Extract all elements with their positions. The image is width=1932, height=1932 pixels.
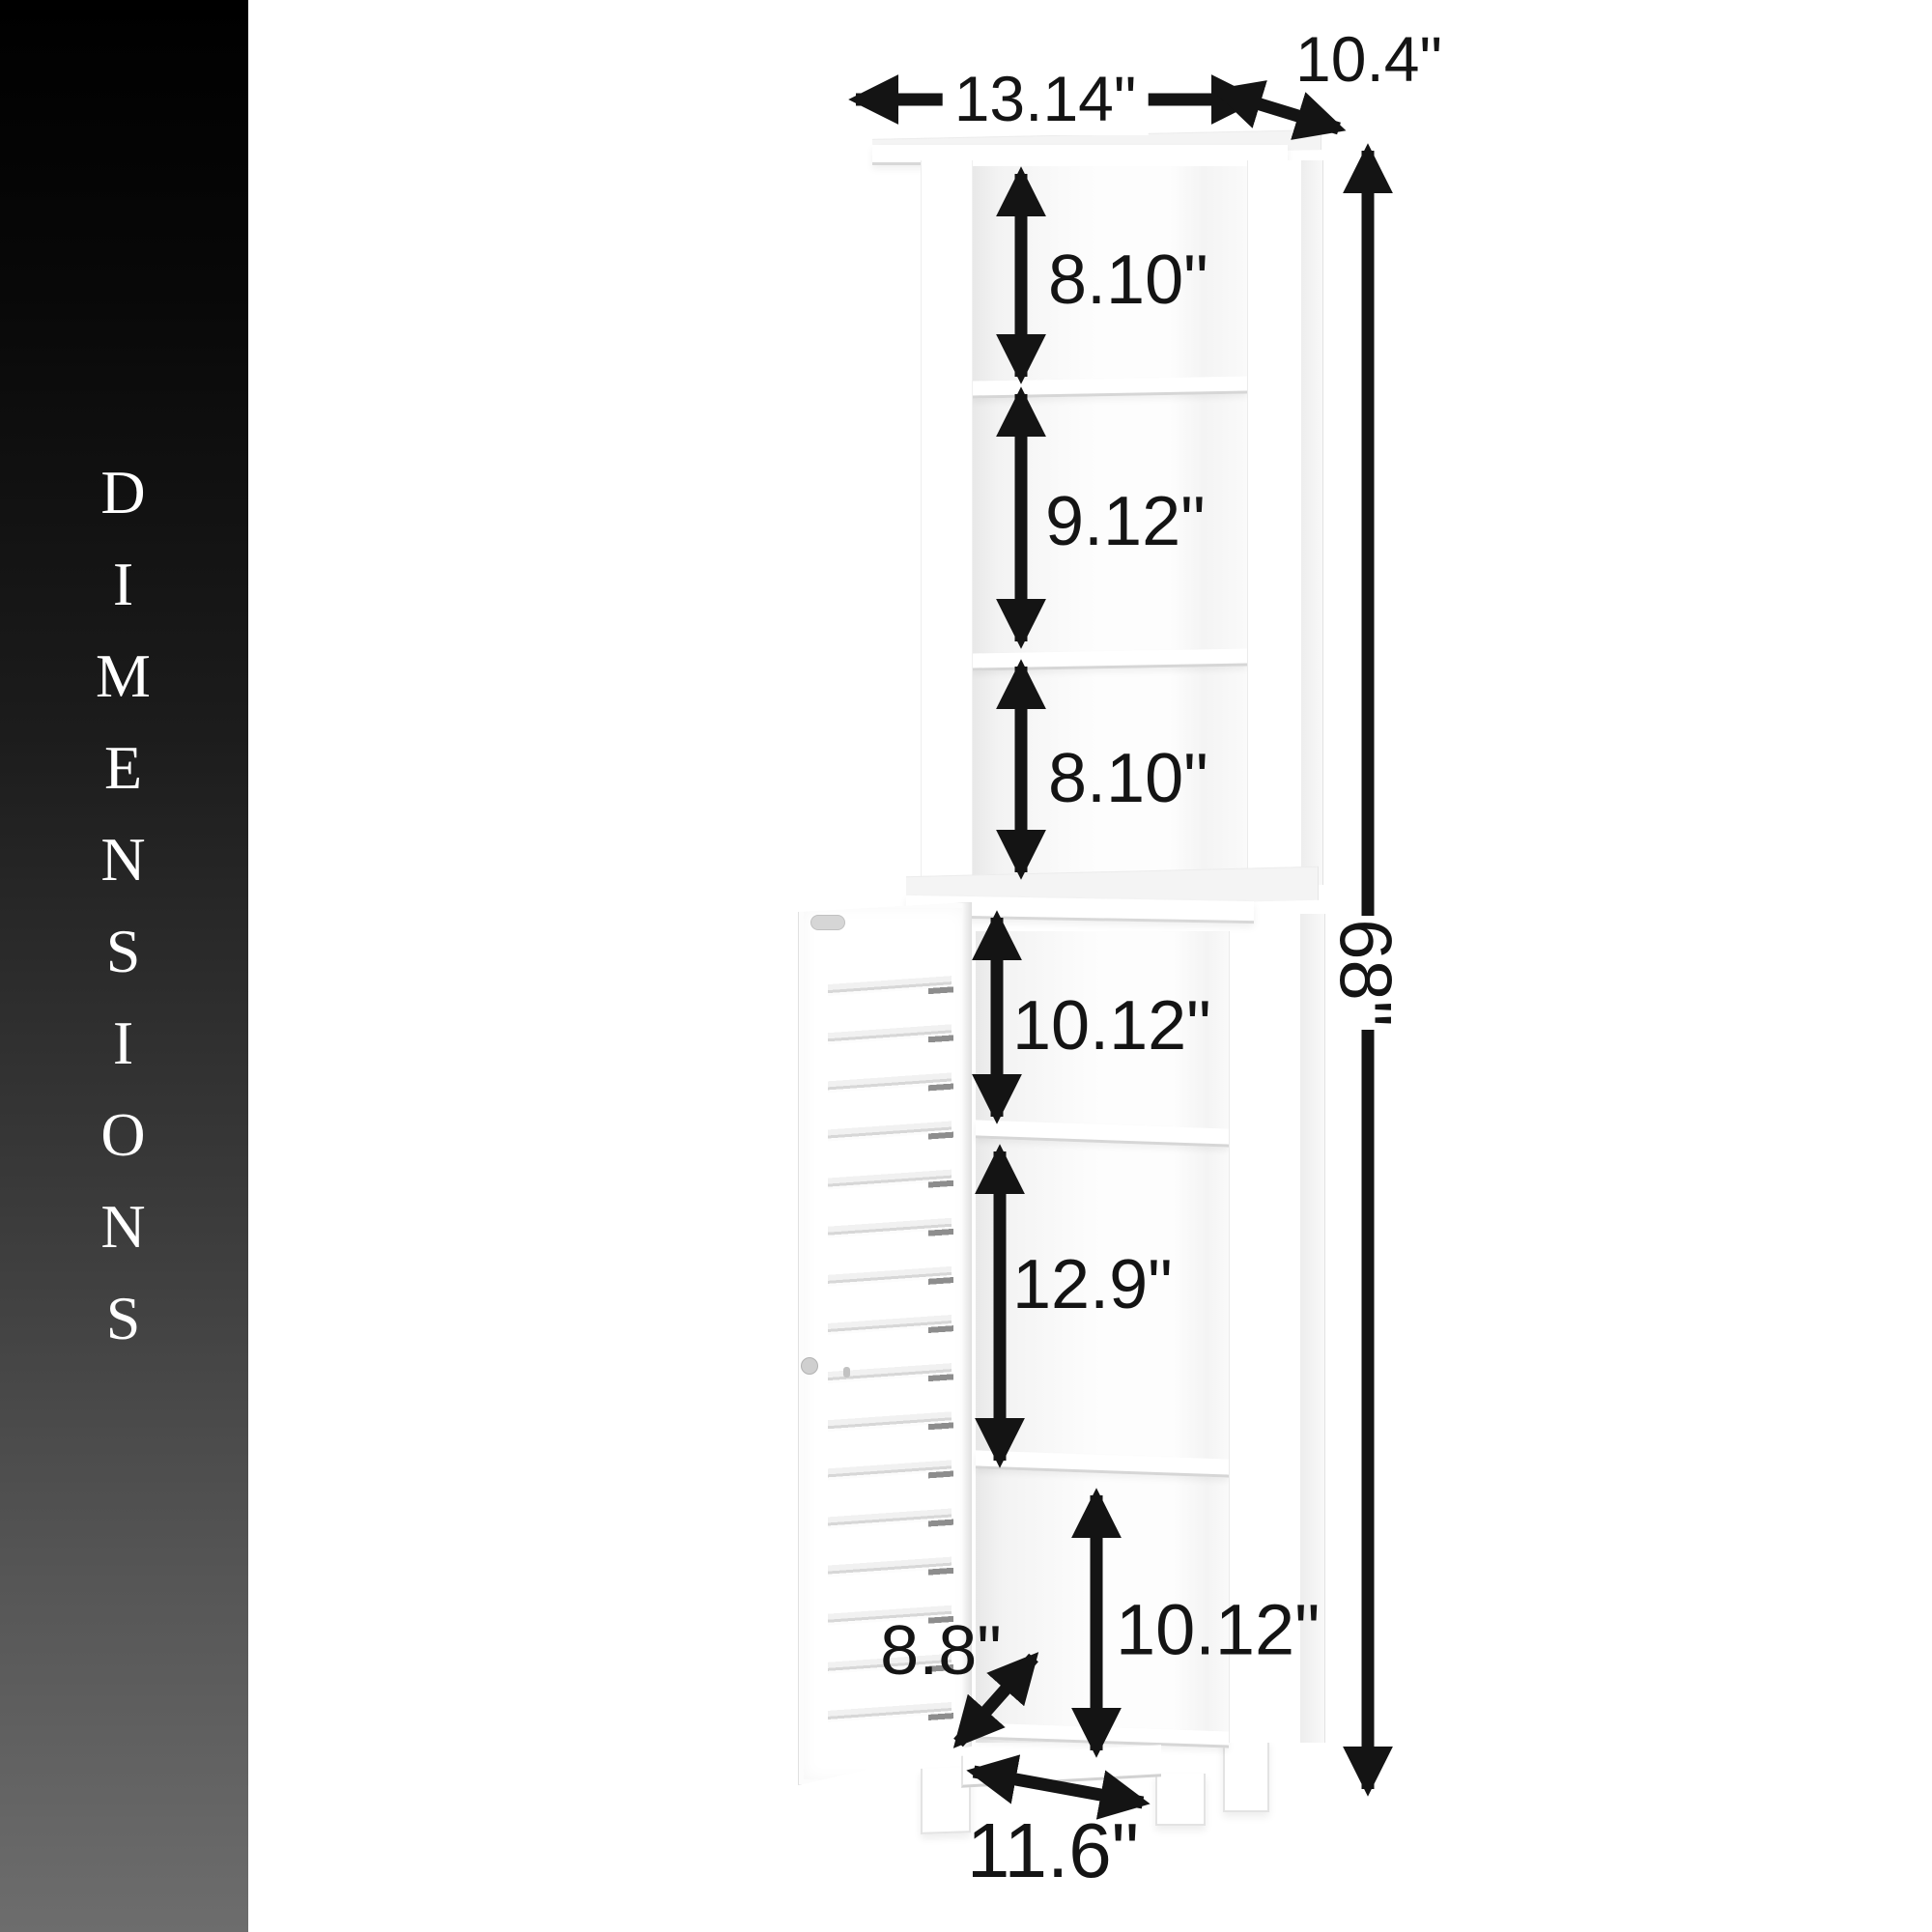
front-right-leg (1155, 1774, 1206, 1826)
door-hinge (810, 915, 845, 930)
label-lower-section-1: 10.12" (1012, 986, 1211, 1065)
arrow-top-depth (1219, 92, 1339, 128)
side-right-leg (1223, 1739, 1269, 1812)
label-upper-section-2: 9.12" (1045, 482, 1206, 561)
hutch-right-stile (1247, 160, 1301, 885)
label-overall-height: 68" (1323, 919, 1407, 1027)
label-top-width: 13.14" (943, 62, 1149, 135)
label-base-width: 11.6" (967, 1806, 1139, 1895)
label-upper-section-3: 8.10" (1048, 739, 1208, 818)
product-dimensions-diagram: DIMENSIONS (0, 0, 1932, 1932)
label-door-depth: 8.8" (880, 1611, 1002, 1690)
hutch-right-side-panel (1299, 160, 1323, 885)
door-keyhole-dot (843, 1367, 850, 1378)
banner-vertical-title: DIMENSIONS (87, 458, 158, 1376)
label-lower-section-2: 12.9" (1012, 1245, 1173, 1324)
hutch-left-stile (922, 160, 973, 885)
banner-gradient-panel: DIMENSIONS (0, 0, 248, 1932)
label-top-depth: 10.4" (1295, 22, 1442, 96)
door-knob (801, 1357, 818, 1375)
label-upper-section-1: 8.10" (1048, 241, 1208, 320)
door-louver-slot-shadows (928, 948, 953, 1726)
base-front-rail (961, 1745, 1161, 1788)
label-lower-section-3: 10.12" (1116, 1589, 1320, 1671)
